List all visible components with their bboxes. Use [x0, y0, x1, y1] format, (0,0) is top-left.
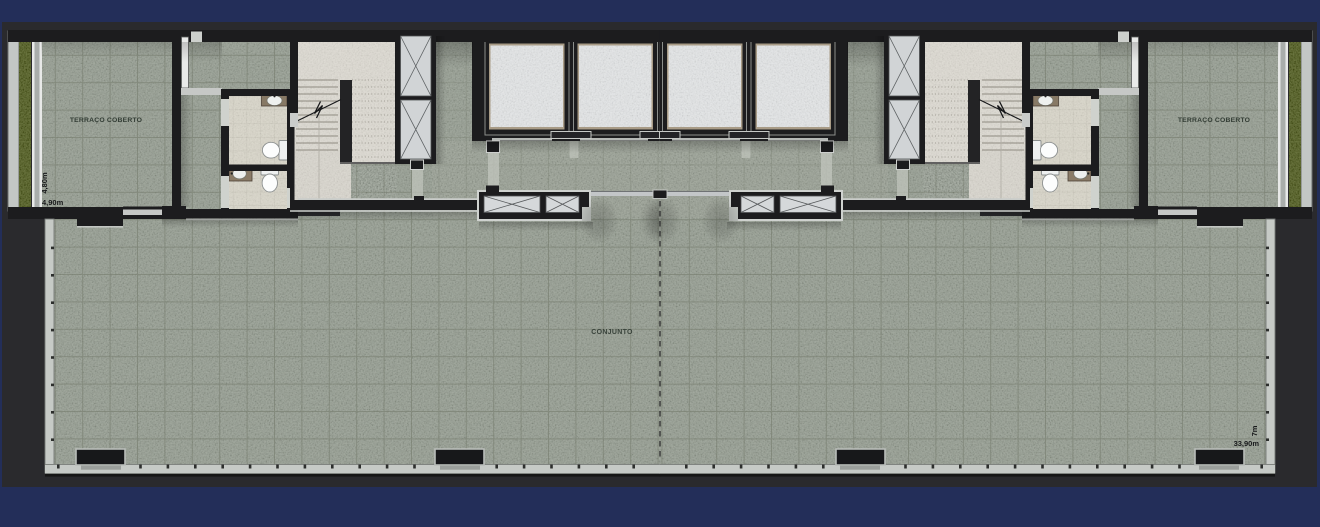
- svg-text:TERRAÇO COBERTO: TERRAÇO COBERTO: [1178, 117, 1250, 124]
- svg-text:4,90m: 4,90m: [42, 198, 64, 207]
- svg-text:4,80m: 4,80m: [40, 172, 49, 194]
- svg-text:CONJUNTO: CONJUNTO: [591, 329, 633, 336]
- svg-text:33,90m: 33,90m: [1234, 439, 1260, 448]
- svg-text:TERRAÇO COBERTO: TERRAÇO COBERTO: [70, 117, 142, 124]
- svg-text:7m: 7m: [1250, 425, 1259, 436]
